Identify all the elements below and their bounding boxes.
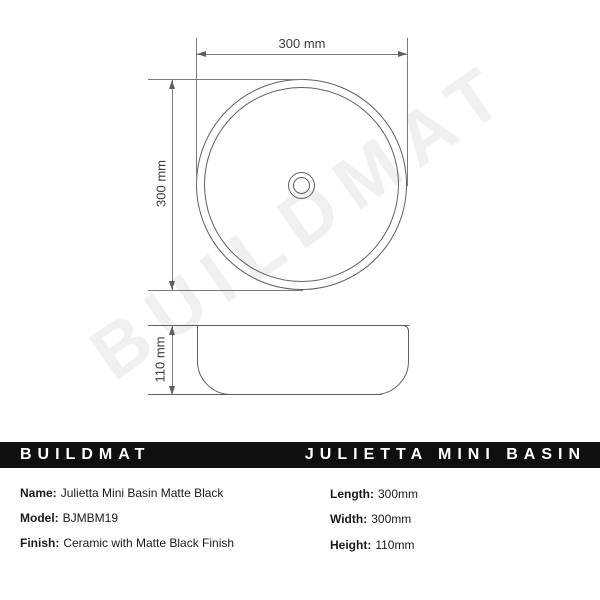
- spec-row-finish: Finish:Ceramic with Matte Black Finish: [20, 536, 234, 550]
- spec-label: Name:: [20, 486, 57, 500]
- spec-row-length: Length:300mm: [330, 487, 418, 501]
- spec-value: 300mm: [371, 512, 411, 526]
- product-title: JULIETTA MINI BASIN: [305, 446, 586, 464]
- product-spec-sheet: BUILDMAT 300 mm 300 mm 110 mm: [0, 0, 600, 600]
- spec-row-model: Model:BJMBM19: [20, 511, 118, 525]
- spec-label: Length:: [330, 487, 374, 501]
- spec-label: Model:: [20, 511, 59, 525]
- dim-arrowhead-left-icon: [197, 51, 206, 57]
- top-width-label: 300 mm: [252, 36, 352, 51]
- spec-row-name: Name:Julietta Mini Basin Matte Black: [20, 486, 223, 500]
- dim-arrowhead-right-icon: [398, 51, 407, 57]
- spec-label: Finish:: [20, 536, 59, 550]
- dim-arrowhead-up-icon: [169, 326, 175, 335]
- spec-value: 110mm: [375, 538, 414, 552]
- brand-name: BUILDMAT: [20, 446, 150, 464]
- extension-line-left: [196, 38, 197, 186]
- dim-arrowhead-up-icon: [169, 80, 175, 89]
- spec-value: 300mm: [378, 487, 418, 501]
- spec-label: Width:: [330, 512, 367, 526]
- spec-row-height: Height:110mm: [330, 538, 414, 552]
- spec-label: Height:: [330, 538, 371, 552]
- spec-value: Julietta Mini Basin Matte Black: [61, 486, 224, 500]
- title-banner: BUILDMAT JULIETTA MINI BASIN: [0, 442, 600, 468]
- side-height-label: 110 mm: [153, 310, 168, 410]
- dimension-line: [196, 54, 408, 55]
- dimension-line: [172, 79, 173, 291]
- basin-side-profile: [197, 325, 409, 395]
- side-view-bottom-line: [148, 394, 382, 395]
- dim-arrowhead-down-icon: [169, 386, 175, 395]
- drain-inner-circle: [293, 177, 310, 194]
- plan-height-label: 300 mm: [154, 134, 169, 234]
- spec-value: Ceramic with Matte Black Finish: [63, 536, 234, 550]
- dim-arrowhead-down-icon: [169, 281, 175, 290]
- spec-value: BJMBM19: [63, 511, 118, 525]
- extension-line-right: [407, 38, 408, 186]
- dimension-line: [172, 325, 173, 395]
- spec-row-width: Width:300mm: [330, 512, 411, 526]
